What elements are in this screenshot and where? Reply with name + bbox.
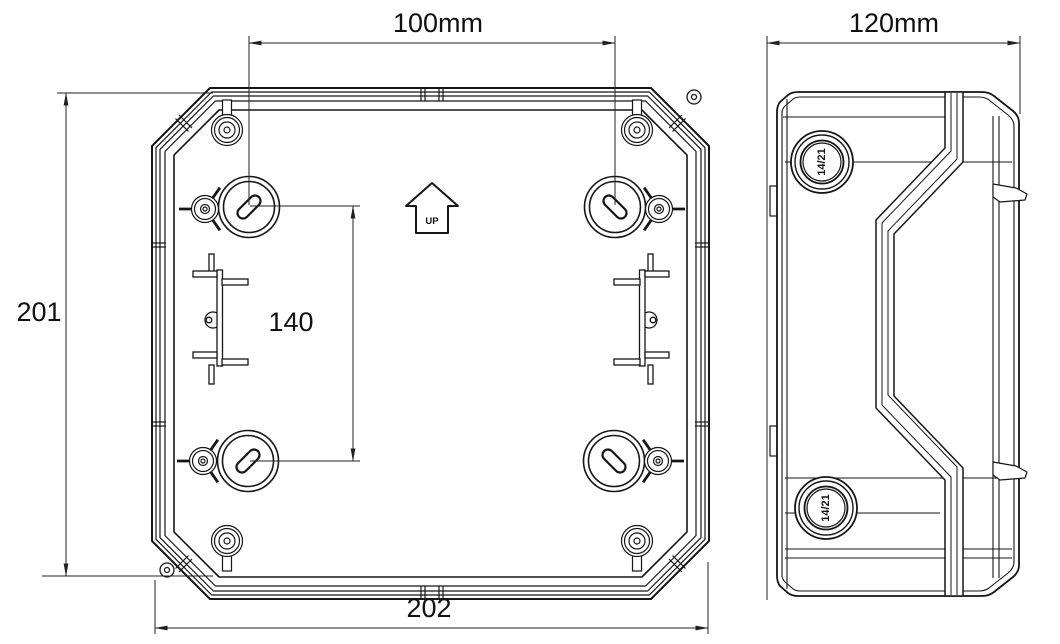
corner-screw-bottom-right xyxy=(622,526,653,572)
drawing-svg: UP xyxy=(0,0,1060,644)
mounting-clip-right xyxy=(614,254,669,384)
knockout-bottom: 14/21 xyxy=(795,477,857,539)
ear-lug-bottom-left xyxy=(160,563,174,577)
mounting-clip-left xyxy=(193,254,248,384)
up-arrow-label: UP xyxy=(425,216,439,227)
dimension-label-100mm: 100mm xyxy=(393,8,483,38)
dimension-label-140: 140 xyxy=(268,307,313,337)
up-arrow: UP xyxy=(406,183,458,233)
knockout-top: 14/21 xyxy=(791,131,853,193)
dimension-label-201: 201 xyxy=(16,297,61,327)
wing-marker-top-left xyxy=(179,188,220,231)
knockout-top-label: 14/21 xyxy=(816,148,828,176)
dimension-label-120mm: 120mm xyxy=(849,8,939,38)
corner-screw-bottom-left xyxy=(212,526,243,572)
dimension-hole-spacing-width: 100mm xyxy=(249,8,615,205)
side-view: 14/21 14/21 xyxy=(770,92,1027,596)
wing-marker-bottom-right xyxy=(643,440,684,483)
front-view: UP xyxy=(152,88,709,599)
latch-hook-lower xyxy=(993,462,1027,480)
ear-lug-top-right xyxy=(687,90,701,104)
wing-marker-top-right xyxy=(644,188,685,231)
corner-screw-top-right xyxy=(622,100,653,146)
technical-drawing: UP xyxy=(0,0,1060,644)
enclosure-rim xyxy=(152,88,709,599)
dimension-height: 201 xyxy=(16,93,213,576)
dimension-hole-spacing-height: 140 xyxy=(250,206,360,461)
latch-hook-upper xyxy=(993,184,1027,202)
wing-marker-bottom-left xyxy=(177,440,218,483)
dimension-label-202: 202 xyxy=(406,593,451,623)
rim-ticks xyxy=(153,89,708,598)
knockout-bottom-label: 14/21 xyxy=(820,494,832,522)
corner-screw-top-left xyxy=(212,100,243,146)
